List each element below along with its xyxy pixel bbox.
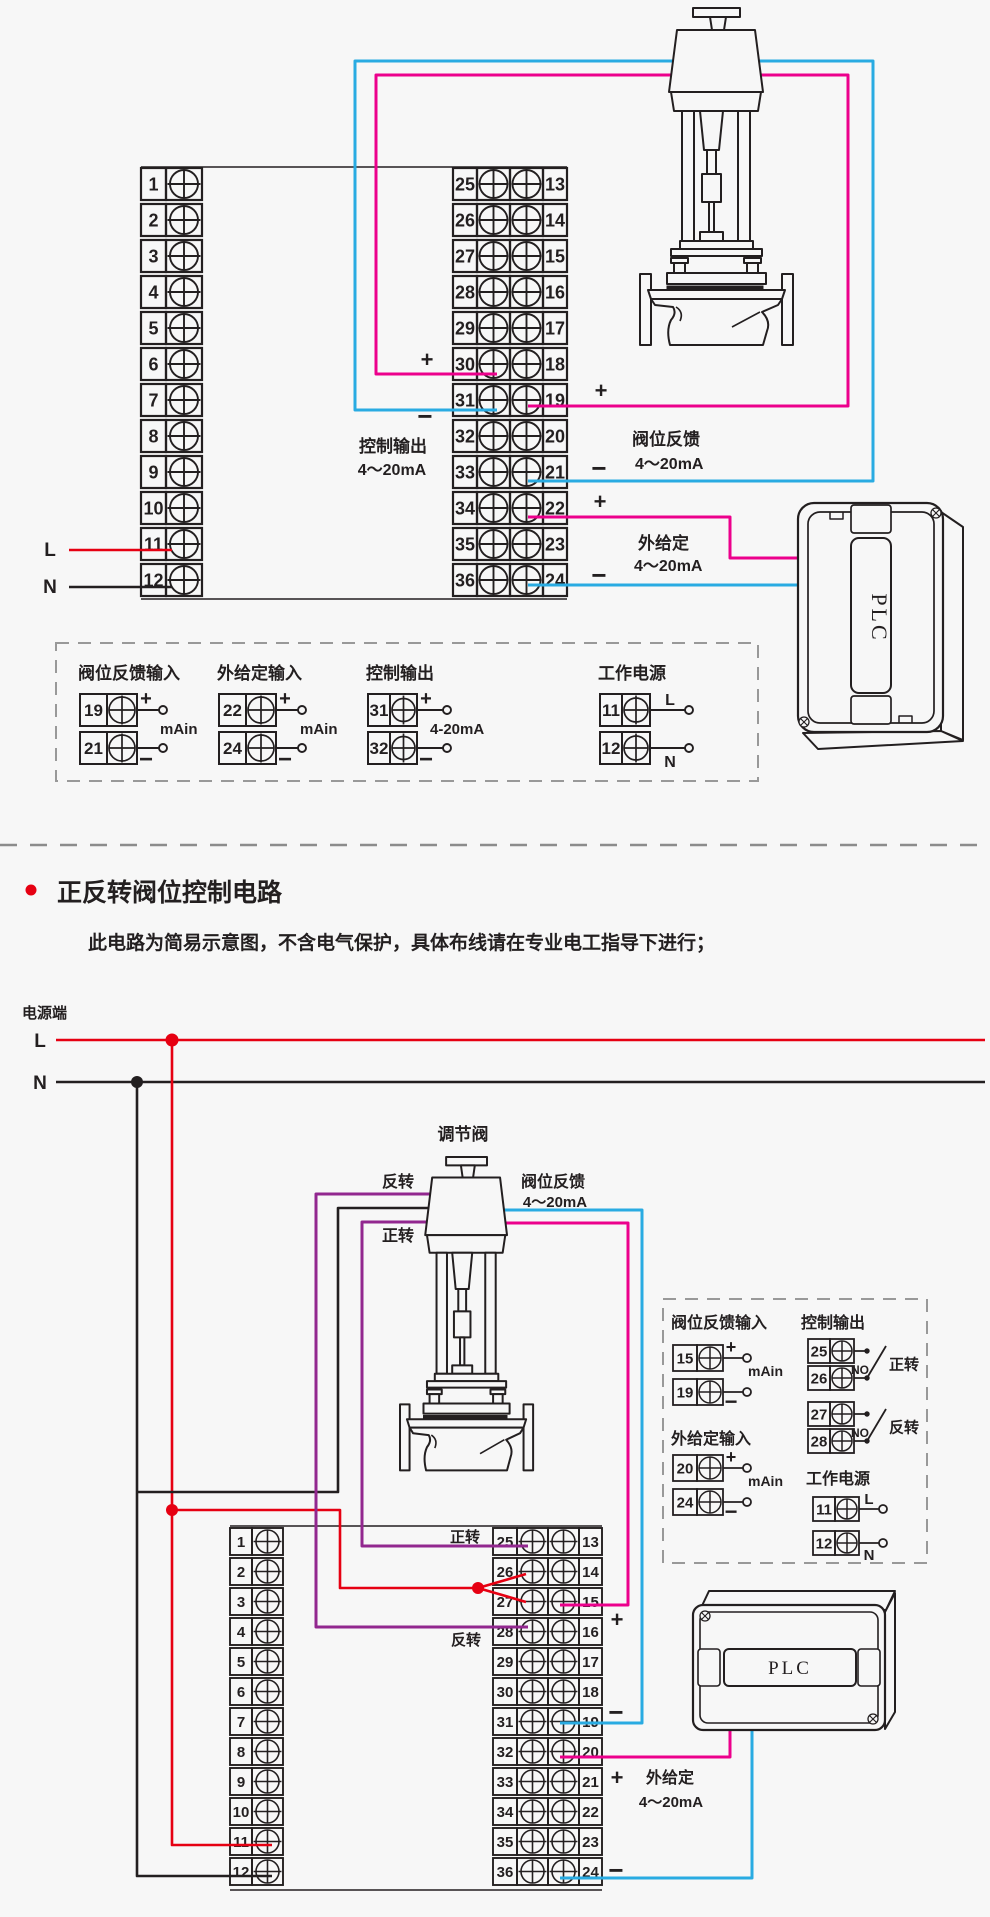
screw-terminal [510,384,543,416]
plus-sign: + [595,378,608,403]
screw-terminal [477,240,510,272]
minus-sign: − [591,453,606,483]
screw-slot-icon [550,1860,578,1884]
screw-slot-icon [519,1650,547,1674]
section-title: 正反转阀位控制电路 [57,878,283,907]
ext-setpoint-range: 4～20mA [639,1794,703,1811]
screw-slot-icon [168,242,201,271]
terminal-number: 29 [455,318,475,338]
screw-terminal [477,492,510,524]
screw-slot-icon [254,1830,282,1854]
screw-terminal [517,1708,548,1735]
control-valve-2 [400,1157,533,1470]
legend-sign: − [725,1389,738,1414]
neutral-label: N [43,577,57,598]
screw-terminal [510,528,543,560]
terminal-number: 25 [811,1343,828,1360]
terminal-number: 21 [582,1774,599,1791]
terminal-number: 27 [455,246,475,266]
screw-slot-icon [519,1830,547,1854]
terminal-number: 7 [148,390,158,410]
screw-terminal [548,1528,579,1555]
screw-terminal [246,694,276,726]
screw-terminal [477,204,510,236]
screw-slot-icon [519,1710,547,1734]
terminal-point-icon [159,706,167,714]
screw-terminal [510,420,543,452]
screw-terminal [252,1828,283,1855]
plc-side-face [941,512,963,740]
screw-slot-icon [168,314,201,343]
valve-part [425,1177,507,1235]
legend-group-title: 工作电源 [806,1469,870,1488]
valve-part [671,92,761,111]
legend-sign: N [664,754,676,771]
terminal-number: 9 [148,462,158,482]
terminal-number: 16 [582,1624,599,1641]
valve-part [693,8,740,17]
screw-terminal [390,694,417,726]
screw-terminal [166,204,202,236]
screw-terminal [830,1402,854,1426]
valve-part [437,1253,447,1374]
valve-part [674,263,685,273]
junction-dot [472,1582,484,1594]
plus-sign: + [421,347,434,372]
screw-slot-icon [168,386,201,415]
screw-terminal [107,732,137,764]
wiring-diagram-page: 1234567891011122513261427152816291730183… [0,0,990,1917]
junction-dot [166,1504,178,1516]
valve-part [454,1311,471,1337]
case-screw-icon [700,1611,710,1621]
legend-group-title: 外给定输入 [670,1429,751,1448]
valve-part [702,174,721,202]
ext-setpoint-label: 外给定 [645,1768,694,1787]
forward-label: 正转 [382,1226,414,1245]
screw-slot-icon [168,422,201,451]
control-output-label: 控制输出 [359,436,427,456]
terminal-number: 21 [84,739,103,758]
legend-unit: 4-20mA [430,721,484,738]
screw-terminal [548,1798,579,1825]
valve-part [410,1428,524,1471]
valve-part [435,1374,499,1381]
screw-terminal [510,204,543,236]
plc-bottom-face [803,731,963,749]
contact-action-label: 正转 [889,1356,919,1374]
screw-terminal [548,1588,579,1615]
valve-part [427,1235,505,1253]
terminal-number: 17 [545,318,565,338]
screw-slot-icon [168,170,201,199]
screw-terminal [517,1768,548,1795]
valve-part [461,1165,475,1177]
screw-slot-icon [248,696,275,725]
screw-terminal [548,1768,579,1795]
screw-terminal [517,1528,548,1555]
screw-terminal [477,312,510,344]
terminal-number: 30 [455,354,475,374]
terminal-number: 9 [237,1774,245,1791]
screw-slot-icon [550,1830,578,1854]
screw-slot-icon [254,1860,282,1884]
terminal-number: 17 [582,1654,599,1671]
valve-part [671,249,762,256]
terminal-number: 1 [148,174,158,194]
terminal-number: 32 [370,739,389,758]
plc-side-face [885,1593,895,1729]
terminal-point-icon [685,706,693,714]
contact-dot [864,1348,869,1353]
screw-terminal [697,1489,723,1515]
screw-slot-icon [168,206,201,235]
screw-terminal [622,732,650,764]
screw-terminal [166,564,202,596]
reverse-label: 反转 [382,1172,414,1191]
valve-part [710,17,726,30]
screw-terminal [252,1738,283,1765]
screw-slot-icon [248,734,275,763]
legend-sign: L [665,692,675,709]
screw-slot-icon [550,1590,578,1614]
case-screw-icon [931,508,941,518]
terminal-number: 25 [455,174,475,194]
valve-part [493,1394,503,1403]
screw-slot-icon [519,1800,547,1824]
legend-sign: − [139,746,153,773]
terminal-number: 10 [143,498,163,518]
minus-sign: − [591,560,606,590]
valve-part [651,299,782,345]
screw-slot-icon [550,1560,578,1584]
terminal-number: 5 [237,1654,245,1671]
terminal-number: 11 [144,534,163,554]
legend-unit: mAin [748,1363,783,1379]
terminal-number: 24 [677,1494,694,1511]
terminal-number: 26 [811,1370,828,1387]
legend-group-title: 阀位反馈输入 [671,1313,767,1332]
terminal-number: 36 [455,570,475,590]
no-contact-blade-icon [867,1346,886,1378]
screw-terminal [548,1858,579,1885]
terminal-number: 13 [582,1534,599,1551]
valve-part [738,111,750,241]
screw-terminal [510,492,543,524]
terminal-point-icon [685,744,693,752]
junction-dot [131,1076,143,1088]
screw-slot-icon [519,1860,547,1884]
terminal-number: 14 [545,210,565,230]
screw-slot-icon [254,1770,282,1794]
wire-control-output-minus [355,61,873,481]
screw-slot-icon [550,1680,578,1704]
terminal-point-icon [743,1464,751,1472]
terminal-point-icon [743,1354,751,1362]
valve-label: 调节阀 [438,1124,489,1144]
ext-setpoint-range: 4～20mA [634,558,703,575]
screw-terminal [510,312,543,344]
terminal-number: 21 [545,462,565,482]
terminal-number: 4 [237,1624,246,1641]
ext-setpoint-label: 外给定 [638,533,689,553]
terminal-point-icon [298,744,306,752]
valve-feedback-range: 4～20mA [523,1194,587,1211]
wiring-diagram-canvas: 1234567891011122513261427152816291730183… [0,0,990,1917]
terminal-point-icon [879,1505,887,1513]
valve-part [700,232,723,241]
minus-sign: − [417,401,432,431]
valve-part [667,273,766,284]
screw-slot-icon [168,278,201,307]
terminal-number: 11 [602,701,620,720]
legend-group-title: 工作电源 [598,663,666,683]
legend-unit: mAin [160,721,198,738]
terminal-number: 13 [545,174,565,194]
screw-terminal [252,1858,283,1885]
screw-terminal [477,528,510,560]
screw-terminal [252,1528,283,1555]
valve-part [485,1253,495,1374]
screw-slot-icon [254,1800,282,1824]
screw-terminal [510,456,543,488]
screw-terminal [548,1678,579,1705]
screw-slot-icon [254,1620,282,1644]
terminal-number: 15 [582,1594,599,1611]
valve-part [407,1419,526,1427]
screw-terminal [252,1618,283,1645]
reverse-label: 反转 [451,1631,481,1649]
screw-slot-icon [519,1770,547,1794]
screw-terminal [477,420,510,452]
terminal-number: 12 [233,1864,250,1881]
screw-terminal [477,456,510,488]
screw-slot-icon [168,494,201,523]
screw-terminal [622,694,650,726]
plc-left-cap [698,1649,720,1686]
screw-terminal [166,348,202,380]
terminal-point-icon [879,1539,887,1547]
plc-right-cap [858,1649,880,1686]
screw-slot-icon [519,1620,547,1644]
legend-sign: + [140,688,152,710]
screw-terminal [166,168,202,200]
screw-slot-icon [550,1620,578,1644]
screw-terminal [835,1497,859,1521]
screw-terminal [252,1678,283,1705]
valve-part [680,241,753,249]
bullet-icon [26,885,37,896]
valve-feedback-range: 4～20mA [635,456,704,473]
terminal-number: 22 [582,1804,599,1821]
screw-terminal [510,348,543,380]
screw-terminal [548,1738,579,1765]
screw-slot-icon [550,1770,578,1794]
screw-terminal [697,1345,723,1371]
screw-terminal [166,240,202,272]
valve-part [747,263,758,273]
terminal-number: 31 [370,701,389,720]
terminal-number: 16 [545,282,565,302]
plus-sign: + [594,489,607,514]
screw-slot-icon [254,1680,282,1704]
screw-slot-icon [168,350,201,379]
valve-part [682,111,694,241]
screw-terminal [510,168,543,200]
valve-part [458,1289,466,1311]
terminal-number: 11 [816,1501,832,1518]
terminal-number: 20 [677,1460,694,1477]
terminal-number: 36 [497,1864,514,1881]
terminal-number: 3 [237,1594,245,1611]
screw-terminal [252,1588,283,1615]
screw-terminal [517,1828,548,1855]
terminal-number: 23 [582,1834,599,1851]
plc-label: PLC [867,593,892,642]
legend-sign: L [864,1491,873,1508]
valve-part [460,1337,464,1365]
contact-dot [864,1411,869,1416]
terminal-point-icon [443,706,451,714]
screw-slot-icon [550,1530,578,1554]
minus-sign: − [608,1855,623,1885]
valve-part [707,150,716,174]
legend-group-title: 控制输出 [366,663,434,683]
valve-part [524,1404,534,1470]
terminal-number: 32 [455,426,475,446]
screw-terminal [252,1798,283,1825]
screw-terminal [510,276,543,308]
terminal-number: 10 [233,1804,250,1821]
valve-feedback-label: 阀位反馈 [632,429,700,449]
terminal-number: 2 [148,210,158,230]
screw-terminal [166,492,202,524]
screw-slot-icon [519,1530,547,1554]
plc-top-cap [851,505,891,533]
terminal-number: 1 [237,1534,245,1551]
contact-type: NO [851,1426,869,1440]
case-screw-icon [868,1714,878,1724]
valve-part [648,290,785,299]
terminal-number: 15 [545,246,565,266]
legend-sign: + [279,688,291,710]
plus-sign: + [611,1607,624,1632]
screw-terminal [830,1339,854,1363]
minus-sign: − [608,1697,623,1727]
legend-sign: − [725,1499,738,1524]
screw-slot-icon [254,1740,282,1764]
live-label: L [34,1031,46,1052]
contact-type: NO [851,1363,869,1377]
screw-slot-icon [254,1560,282,1584]
terminal-number: 35 [455,534,475,554]
terminal-number: 8 [148,426,158,446]
valve-part [400,1404,410,1470]
screw-slot-icon [392,696,416,725]
screw-terminal [166,528,202,560]
terminal-number: 8 [237,1744,245,1761]
terminal-number: 25 [497,1534,514,1551]
terminal-number: 24 [223,739,242,758]
terminal-point-icon [298,706,306,714]
screw-slot-icon [550,1740,578,1764]
screw-terminal [252,1708,283,1735]
terminal-number: 32 [497,1744,514,1761]
case-screw-icon [799,717,809,727]
terminal-number: 34 [455,498,475,518]
terminal-number: 14 [582,1564,599,1581]
wire-control-output-plus [376,75,848,406]
screw-slot-icon [254,1590,282,1614]
screw-terminal [517,1648,548,1675]
terminal-number: 22 [223,701,242,720]
control-output-range: 4～20mA [358,462,427,479]
screw-slot-icon [392,734,416,763]
screw-slot-icon [624,696,649,725]
terminal-point-icon [443,744,451,752]
legend-unit: mAin [300,721,338,738]
valve-feedback-label: 阀位反馈 [521,1172,585,1191]
screw-terminal [107,694,137,726]
valve-part [669,30,763,92]
terminal-number: 3 [148,246,158,266]
terminal-number: 31 [455,390,475,410]
screw-terminal [517,1678,548,1705]
legend-sign: − [278,746,292,773]
control-valve [640,8,793,345]
valve-part [452,1253,472,1289]
valve-part [430,1394,440,1403]
terminal-number: 12 [602,739,621,758]
terminal-number: 23 [545,534,565,554]
terminal-number: 28 [455,282,475,302]
plc-bottom-cap [851,696,891,724]
screw-terminal [510,240,543,272]
legend-sign: − [419,746,433,773]
contact-action-label: 反转 [889,1419,919,1437]
terminal-number: 6 [237,1684,245,1701]
screw-terminal [697,1455,723,1481]
section-note: 此电路为简易示意图，不含电气保护，具体布线请在专业电工指导下进行； [88,931,715,954]
screw-terminal [246,732,276,764]
plc-label: PLC [768,1658,812,1679]
screw-slot-icon [168,566,201,595]
screw-terminal [166,420,202,452]
valve-part [452,1365,472,1373]
legend-sign: + [420,688,432,710]
terminal-point-icon [743,1498,751,1506]
terminal-number: 19 [677,1384,694,1401]
screw-terminal [548,1828,579,1855]
screw-terminal [166,456,202,488]
valve-part [427,1381,506,1388]
terminal-number: 24 [545,570,565,590]
terminal-number: 19 [84,701,103,720]
valve-part [640,274,651,345]
valve-part [423,1403,509,1413]
terminal-number: 18 [582,1684,599,1701]
valve-part [782,274,793,345]
wire-neutral-to-valve [137,1208,470,1492]
plc-box-2: PLC [693,1591,895,1730]
legend-sign: + [726,1447,737,1467]
forward-label: 正转 [450,1528,480,1546]
screw-slot-icon [168,530,201,559]
legend-group-title: 控制输出 [801,1313,865,1332]
terminal-number: 35 [497,1834,514,1851]
screw-terminal [252,1558,283,1585]
terminal-number: 11 [233,1834,249,1851]
